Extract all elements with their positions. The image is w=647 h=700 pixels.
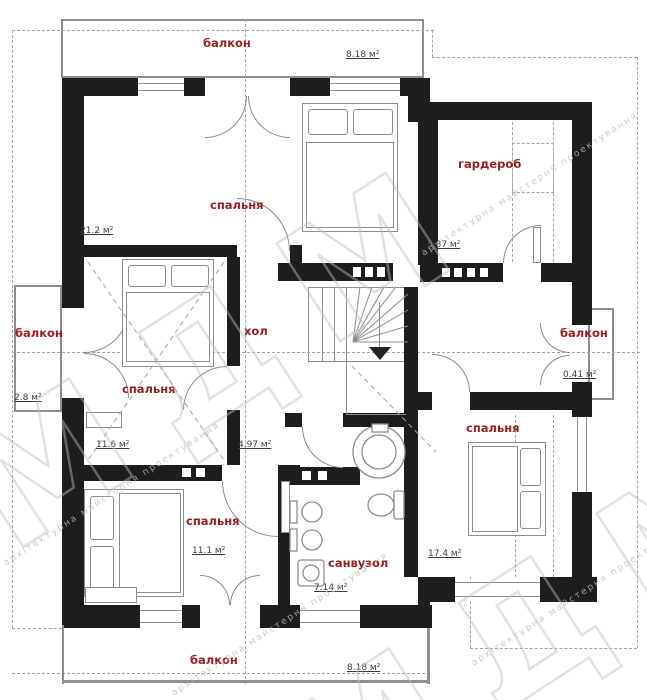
- attic-dashed-line: [553, 415, 554, 577]
- roof-dashed-line: [432, 30, 433, 57]
- room-label-balcony-top: балкон: [203, 36, 251, 50]
- wall: [540, 577, 597, 602]
- door-swing-arc: [248, 96, 290, 138]
- washing-machine-drum: [303, 565, 319, 581]
- stair-tread: [346, 287, 347, 362]
- closet-cell: [302, 471, 311, 480]
- area-label-wardrobe: 8.87 м²: [427, 240, 460, 250]
- room-label-balcony-bottom: балкон: [190, 653, 238, 667]
- wall: [227, 410, 240, 465]
- room-label-bedroom-right: спальня: [466, 421, 520, 435]
- closet-cell: [480, 268, 488, 277]
- window: [330, 80, 400, 94]
- window: [455, 579, 540, 600]
- built-in-closet: [176, 465, 214, 481]
- wall: [260, 605, 300, 628]
- roof-dashed-line: [470, 648, 637, 649]
- pillow: [90, 496, 114, 540]
- door-swing-arc: [200, 575, 230, 605]
- bathtub-inner: [362, 435, 396, 469]
- closet-cell: [454, 268, 462, 277]
- area-label-bathroom: 7.14 м²: [314, 583, 347, 593]
- roof-dashed-line: [432, 57, 637, 58]
- sink-base: [290, 529, 297, 551]
- area-label-balcony-top: 8.18 м²: [346, 50, 379, 60]
- wall: [62, 605, 140, 628]
- room-label-balcony-left: балкон: [15, 326, 63, 340]
- toilet-tank: [394, 491, 404, 519]
- wall: [290, 78, 330, 96]
- wall: [62, 78, 138, 96]
- pillow: [520, 448, 541, 486]
- closet-cell: [365, 267, 373, 277]
- closet-cell: [442, 268, 450, 277]
- cabinet: [85, 587, 137, 603]
- built-in-closet: [278, 263, 393, 281]
- wall: [182, 605, 200, 628]
- room-label-balcony-right: балкон: [560, 326, 608, 340]
- door-swing-arc: [183, 366, 227, 410]
- wall: [418, 392, 432, 410]
- area-label-bedroom-top: 21.2 м²: [80, 226, 113, 236]
- balcony-bottom-edge: [62, 680, 430, 683]
- floor-plan: балкон 8.18 м² спальня 21.2 м² гардероб …: [0, 0, 647, 700]
- window: [300, 607, 360, 626]
- stair-direction-line: [379, 302, 380, 347]
- bed: [302, 103, 398, 232]
- bed: [122, 259, 214, 367]
- wall: [62, 78, 84, 308]
- wall: [541, 263, 572, 282]
- room-label-bedroom-top: спальня: [210, 198, 264, 212]
- sink-base: [290, 501, 297, 523]
- pillow: [308, 109, 348, 135]
- wall: [572, 382, 592, 417]
- wall: [62, 465, 176, 481]
- stair-down-arrow: [369, 347, 391, 360]
- mattress: [306, 142, 394, 228]
- sink: [302, 502, 322, 522]
- stair-tread: [322, 287, 323, 362]
- dresser: [86, 412, 122, 428]
- door-swing-arc: [230, 575, 260, 605]
- pillow: [171, 265, 209, 287]
- door-swing-arc: [302, 427, 343, 468]
- door-swing-arc: [432, 354, 470, 392]
- bathtub: [353, 426, 405, 478]
- bed: [468, 442, 546, 536]
- room-label-bedroom-mid: спальня: [122, 382, 176, 396]
- wall: [77, 245, 237, 257]
- wall: [470, 392, 572, 410]
- closet-cell: [318, 471, 327, 480]
- window: [140, 607, 182, 626]
- stair-stringer: [346, 362, 347, 415]
- room-label-wardrobe: гардероб: [458, 157, 521, 171]
- roof-dashed-line: [12, 30, 434, 31]
- area-label-balcony-bottom: 8.18 м²: [347, 663, 380, 673]
- door-swing-arc: [205, 96, 247, 138]
- area-label-bedroom-mid: 11.6 м²: [96, 440, 129, 450]
- wall: [404, 287, 418, 577]
- room-label-bathroom: санвузол: [328, 556, 388, 570]
- built-in-closet: [290, 467, 360, 485]
- sink: [302, 530, 322, 550]
- closet-cell: [353, 267, 361, 277]
- closet-cell: [196, 468, 205, 477]
- room-label-hall: хол: [244, 324, 268, 338]
- closet-cell: [377, 267, 385, 277]
- area-label-balcony-left: 2.8 м²: [14, 393, 42, 403]
- wall: [418, 577, 430, 628]
- mattress: [119, 493, 181, 593]
- stair-stringer: [346, 414, 406, 415]
- door-leaf: [533, 227, 541, 263]
- wall: [343, 413, 418, 427]
- area-label-hall: 4.97 м²: [238, 440, 271, 450]
- axis-dashed-line: [12, 352, 640, 353]
- area-label-bedroom-bottom: 11.1 м²: [192, 546, 225, 556]
- roof-dashed-line: [12, 30, 13, 628]
- wall: [214, 465, 222, 481]
- balcony-bottom-edge: [62, 625, 64, 684]
- closet-cell: [467, 268, 475, 277]
- mattress: [126, 292, 210, 362]
- closet-cell: [182, 468, 191, 477]
- wall: [495, 263, 503, 282]
- area-label-bedroom-right: 17.4 м²: [428, 549, 461, 559]
- built-in-closet: [437, 263, 495, 282]
- door-swing-arc: [222, 481, 278, 537]
- door-leaf: [281, 481, 290, 533]
- pillow: [520, 491, 541, 529]
- toilet-bowl: [368, 494, 394, 516]
- window: [138, 80, 184, 94]
- window: [574, 417, 590, 492]
- pillow: [128, 265, 166, 287]
- room-label-bedroom-bottom: спальня: [186, 514, 240, 528]
- balcony-bottom-edge: [427, 628, 430, 684]
- stair-tread: [334, 287, 335, 362]
- wall: [572, 102, 592, 325]
- area-label-balcony-right: 0.41 м²: [563, 370, 596, 380]
- wall: [227, 257, 240, 366]
- wall: [62, 398, 84, 625]
- staircase: [308, 287, 408, 362]
- pillow: [90, 546, 114, 590]
- roof-dashed-line: [12, 628, 62, 629]
- mattress: [472, 446, 518, 532]
- roof-dashed-line: [12, 673, 430, 674]
- bed: [84, 489, 184, 597]
- wall: [184, 78, 205, 96]
- wall: [285, 413, 302, 427]
- wall: [420, 102, 592, 120]
- pillow: [353, 109, 393, 135]
- wall: [420, 263, 437, 282]
